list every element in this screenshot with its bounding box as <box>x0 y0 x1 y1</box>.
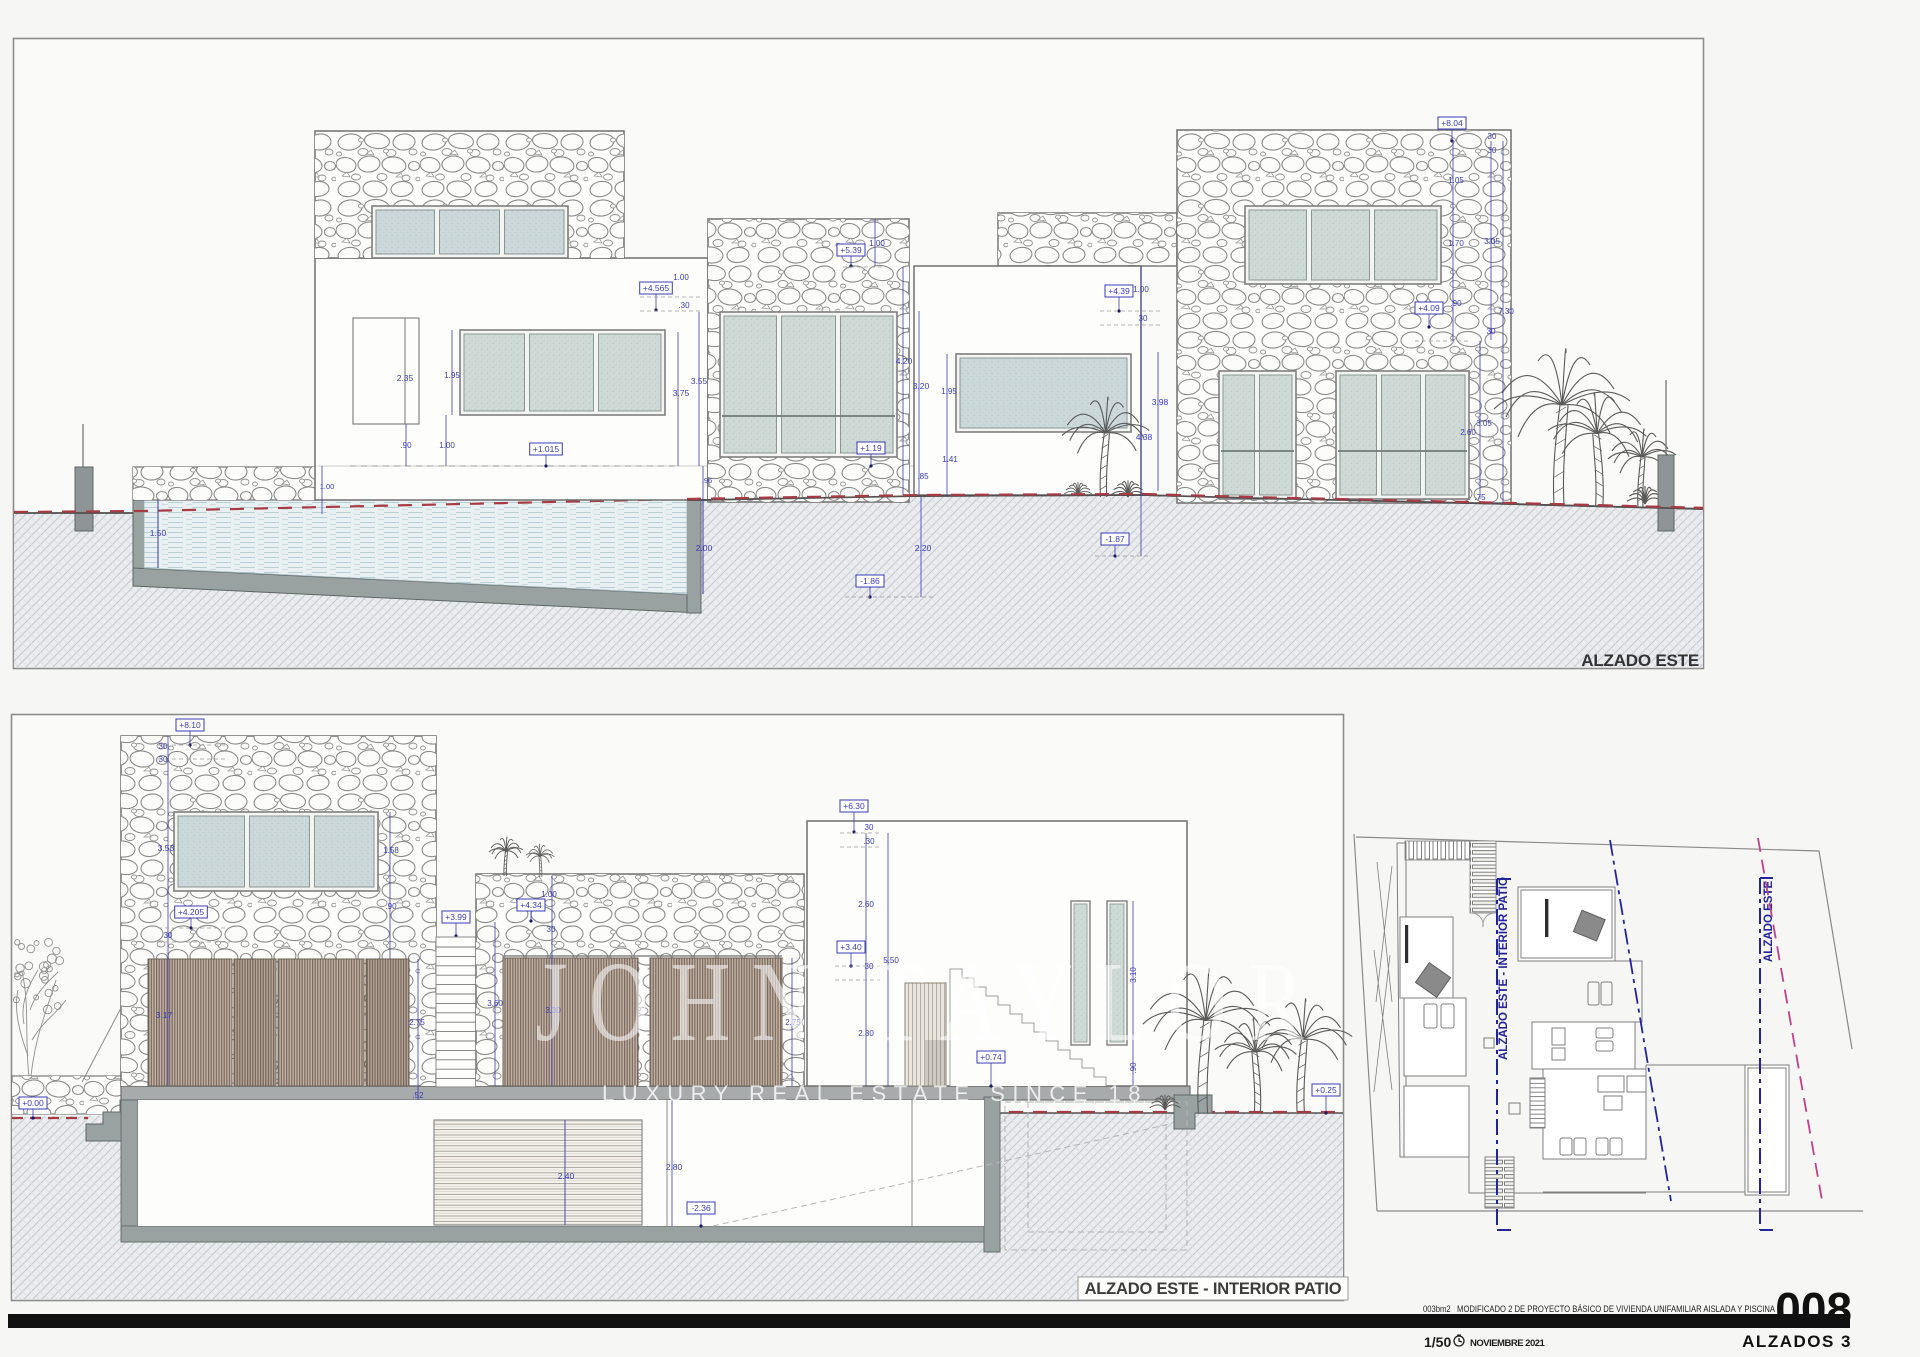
svg-text:-1.86: -1.86 <box>860 576 880 586</box>
svg-text:2.35: 2.35 <box>397 373 414 383</box>
svg-text:2.60: 2.60 <box>858 900 874 909</box>
svg-text:3.60: 3.60 <box>487 999 503 1008</box>
svg-text:2.80: 2.80 <box>666 1162 683 1172</box>
svg-text:2.60: 2.60 <box>1460 428 1476 437</box>
svg-text:4.20: 4.20 <box>896 356 913 366</box>
svg-text:3.05: 3.05 <box>1476 419 1492 428</box>
svg-text:1.41: 1.41 <box>942 455 958 464</box>
svg-text:3.20: 3.20 <box>913 381 930 391</box>
svg-text:+5.39: +5.39 <box>840 245 862 255</box>
svg-text:.30: .30 <box>678 301 690 310</box>
svg-text:.30: .30 <box>863 837 875 846</box>
svg-text:+0.00: +0.00 <box>22 1098 44 1108</box>
svg-text:30: 30 <box>164 931 173 940</box>
svg-text:+4.34: +4.34 <box>520 900 542 910</box>
svg-text:+3.99: +3.99 <box>445 912 467 922</box>
svg-text:1/50: 1/50 <box>1424 1334 1451 1350</box>
svg-text:7.30: 7.30 <box>1498 307 1514 316</box>
svg-text:30: 30 <box>159 755 168 764</box>
svg-text:1.00: 1.00 <box>673 273 689 282</box>
svg-text:JOHN TAYLOR: JOHN TAYLOR <box>535 938 1325 1065</box>
svg-text:+1.015: +1.015 <box>533 444 560 454</box>
svg-text:1.95: 1.95 <box>444 371 460 380</box>
svg-text:.90: .90 <box>1450 299 1462 308</box>
svg-text:1.05: 1.05 <box>1448 176 1464 185</box>
svg-text:+4.205: +4.205 <box>178 907 205 917</box>
svg-text:+8.10: +8.10 <box>179 720 201 730</box>
svg-text:LUXURY REAL ESTATE SINCE 18: LUXURY REAL ESTATE SINCE 18 <box>602 1081 1148 1106</box>
svg-text:1.50: 1.50 <box>150 528 167 538</box>
svg-text:.90: .90 <box>400 441 412 450</box>
svg-text:3.98: 3.98 <box>1152 397 1169 407</box>
svg-text:.52: .52 <box>412 1091 424 1100</box>
svg-text:NOVIEMBRE 2021: NOVIEMBRE 2021 <box>1470 1338 1546 1349</box>
svg-text:ALZADO ESTE - INTERIOR PATIO: ALZADO ESTE - INTERIOR PATIO <box>1085 1280 1342 1298</box>
svg-text:.90: .90 <box>385 902 397 911</box>
svg-text:+4.39: +4.39 <box>1108 286 1130 296</box>
svg-text:30: 30 <box>1487 327 1496 336</box>
svg-text:ALZADOS 3: ALZADOS 3 <box>1742 1332 1852 1351</box>
svg-text:+6.30: +6.30 <box>843 801 865 811</box>
svg-text:ALZADO ESTE: ALZADO ESTE <box>1763 881 1775 962</box>
svg-text:+4.565: +4.565 <box>643 283 670 293</box>
svg-text:+0.25: +0.25 <box>1315 1085 1337 1095</box>
svg-text:30: 30 <box>1139 314 1148 323</box>
svg-text:1.00: 1.00 <box>869 239 885 248</box>
svg-text:30: 30 <box>1488 132 1497 141</box>
svg-text:.96: .96 <box>702 476 712 485</box>
svg-text:+4.09: +4.09 <box>1418 303 1440 313</box>
svg-text:+8.04: +8.04 <box>1441 118 1463 128</box>
svg-text:2.20: 2.20 <box>915 543 932 553</box>
svg-text:-2.36: -2.36 <box>691 1203 711 1213</box>
svg-text:1.58: 1.58 <box>383 846 399 855</box>
svg-text:3.55: 3.55 <box>691 376 708 386</box>
svg-text:-1.87: -1.87 <box>1105 534 1125 544</box>
svg-text:30: 30 <box>865 823 874 832</box>
svg-text:3.05: 3.05 <box>1484 237 1500 246</box>
svg-text:2.75: 2.75 <box>409 1018 425 1027</box>
svg-text:30: 30 <box>159 742 168 751</box>
svg-text:30: 30 <box>1488 146 1497 155</box>
svg-text:.75: .75 <box>1474 493 1486 502</box>
svg-text:2.40: 2.40 <box>558 1171 575 1181</box>
svg-text:3.53: 3.53 <box>158 843 175 853</box>
svg-text:ALZADO ESTE: ALZADO ESTE <box>1581 651 1699 670</box>
svg-text:1.00: 1.00 <box>320 482 335 491</box>
svg-text:ALZADO ESTE - INTERIOR PATIO: ALZADO ESTE - INTERIOR PATIO <box>1498 877 1510 1060</box>
svg-text:30: 30 <box>547 925 556 934</box>
svg-text:1.70: 1.70 <box>1448 239 1464 248</box>
svg-text:1.95: 1.95 <box>941 387 957 396</box>
svg-text:003bm2 MODIFICADO 2 DE PROYE: 003bm2 MODIFICADO 2 DE PROYECTO BÁSICO D… <box>1423 1304 1775 1314</box>
svg-text:.85: .85 <box>917 472 929 481</box>
svg-text:+1.19: +1.19 <box>860 443 882 453</box>
svg-text:4.38: 4.38 <box>1136 432 1153 442</box>
svg-text:1.00: 1.00 <box>439 441 455 450</box>
svg-text:3.75: 3.75 <box>673 388 690 398</box>
svg-text:1.00: 1.00 <box>541 890 557 899</box>
svg-text:3.17: 3.17 <box>156 1010 173 1020</box>
svg-text:2.00: 2.00 <box>696 543 713 553</box>
